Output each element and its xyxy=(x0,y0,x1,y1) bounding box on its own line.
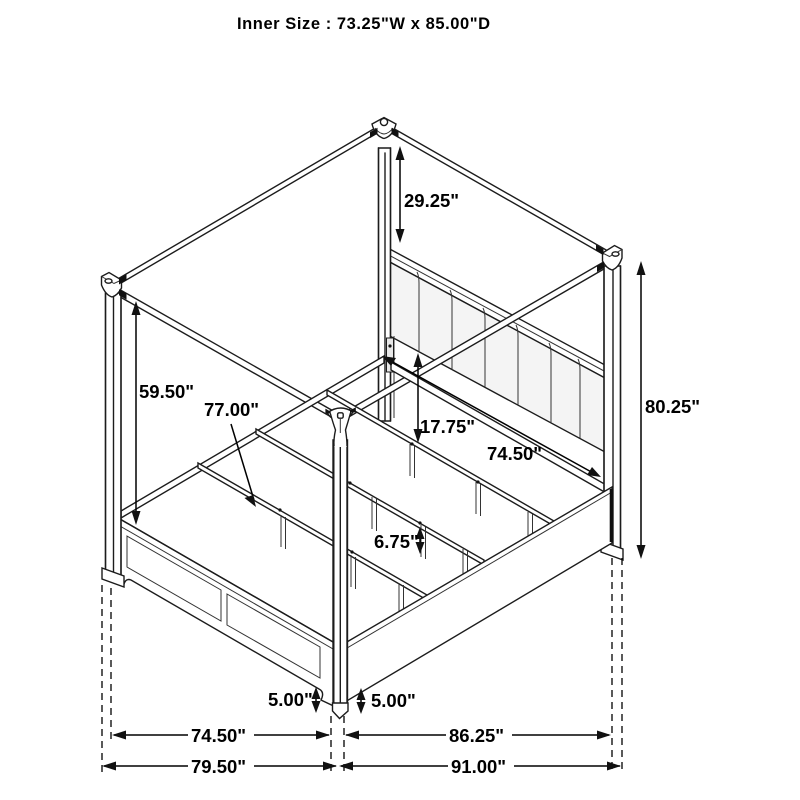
svg-text:5.00": 5.00" xyxy=(268,689,313,710)
svg-text:79.50": 79.50" xyxy=(191,756,246,777)
svg-text:91.00": 91.00" xyxy=(451,756,506,777)
svg-text:59.50": 59.50" xyxy=(139,381,194,402)
svg-text:29.25": 29.25" xyxy=(404,190,459,211)
svg-text:5.00": 5.00" xyxy=(371,690,416,711)
svg-text:6.75": 6.75" xyxy=(374,531,419,552)
svg-text:80.25": 80.25" xyxy=(645,396,700,417)
svg-text:77.00": 77.00" xyxy=(204,399,259,420)
svg-text:86.25": 86.25" xyxy=(449,725,504,746)
svg-text:74.50": 74.50" xyxy=(487,443,542,464)
svg-text:Inner Size : 73.25"W x 85.00"D: Inner Size : 73.25"W x 85.00"D xyxy=(237,15,490,33)
svg-text:74.50": 74.50" xyxy=(191,725,246,746)
svg-text:17.75": 17.75" xyxy=(420,416,475,437)
